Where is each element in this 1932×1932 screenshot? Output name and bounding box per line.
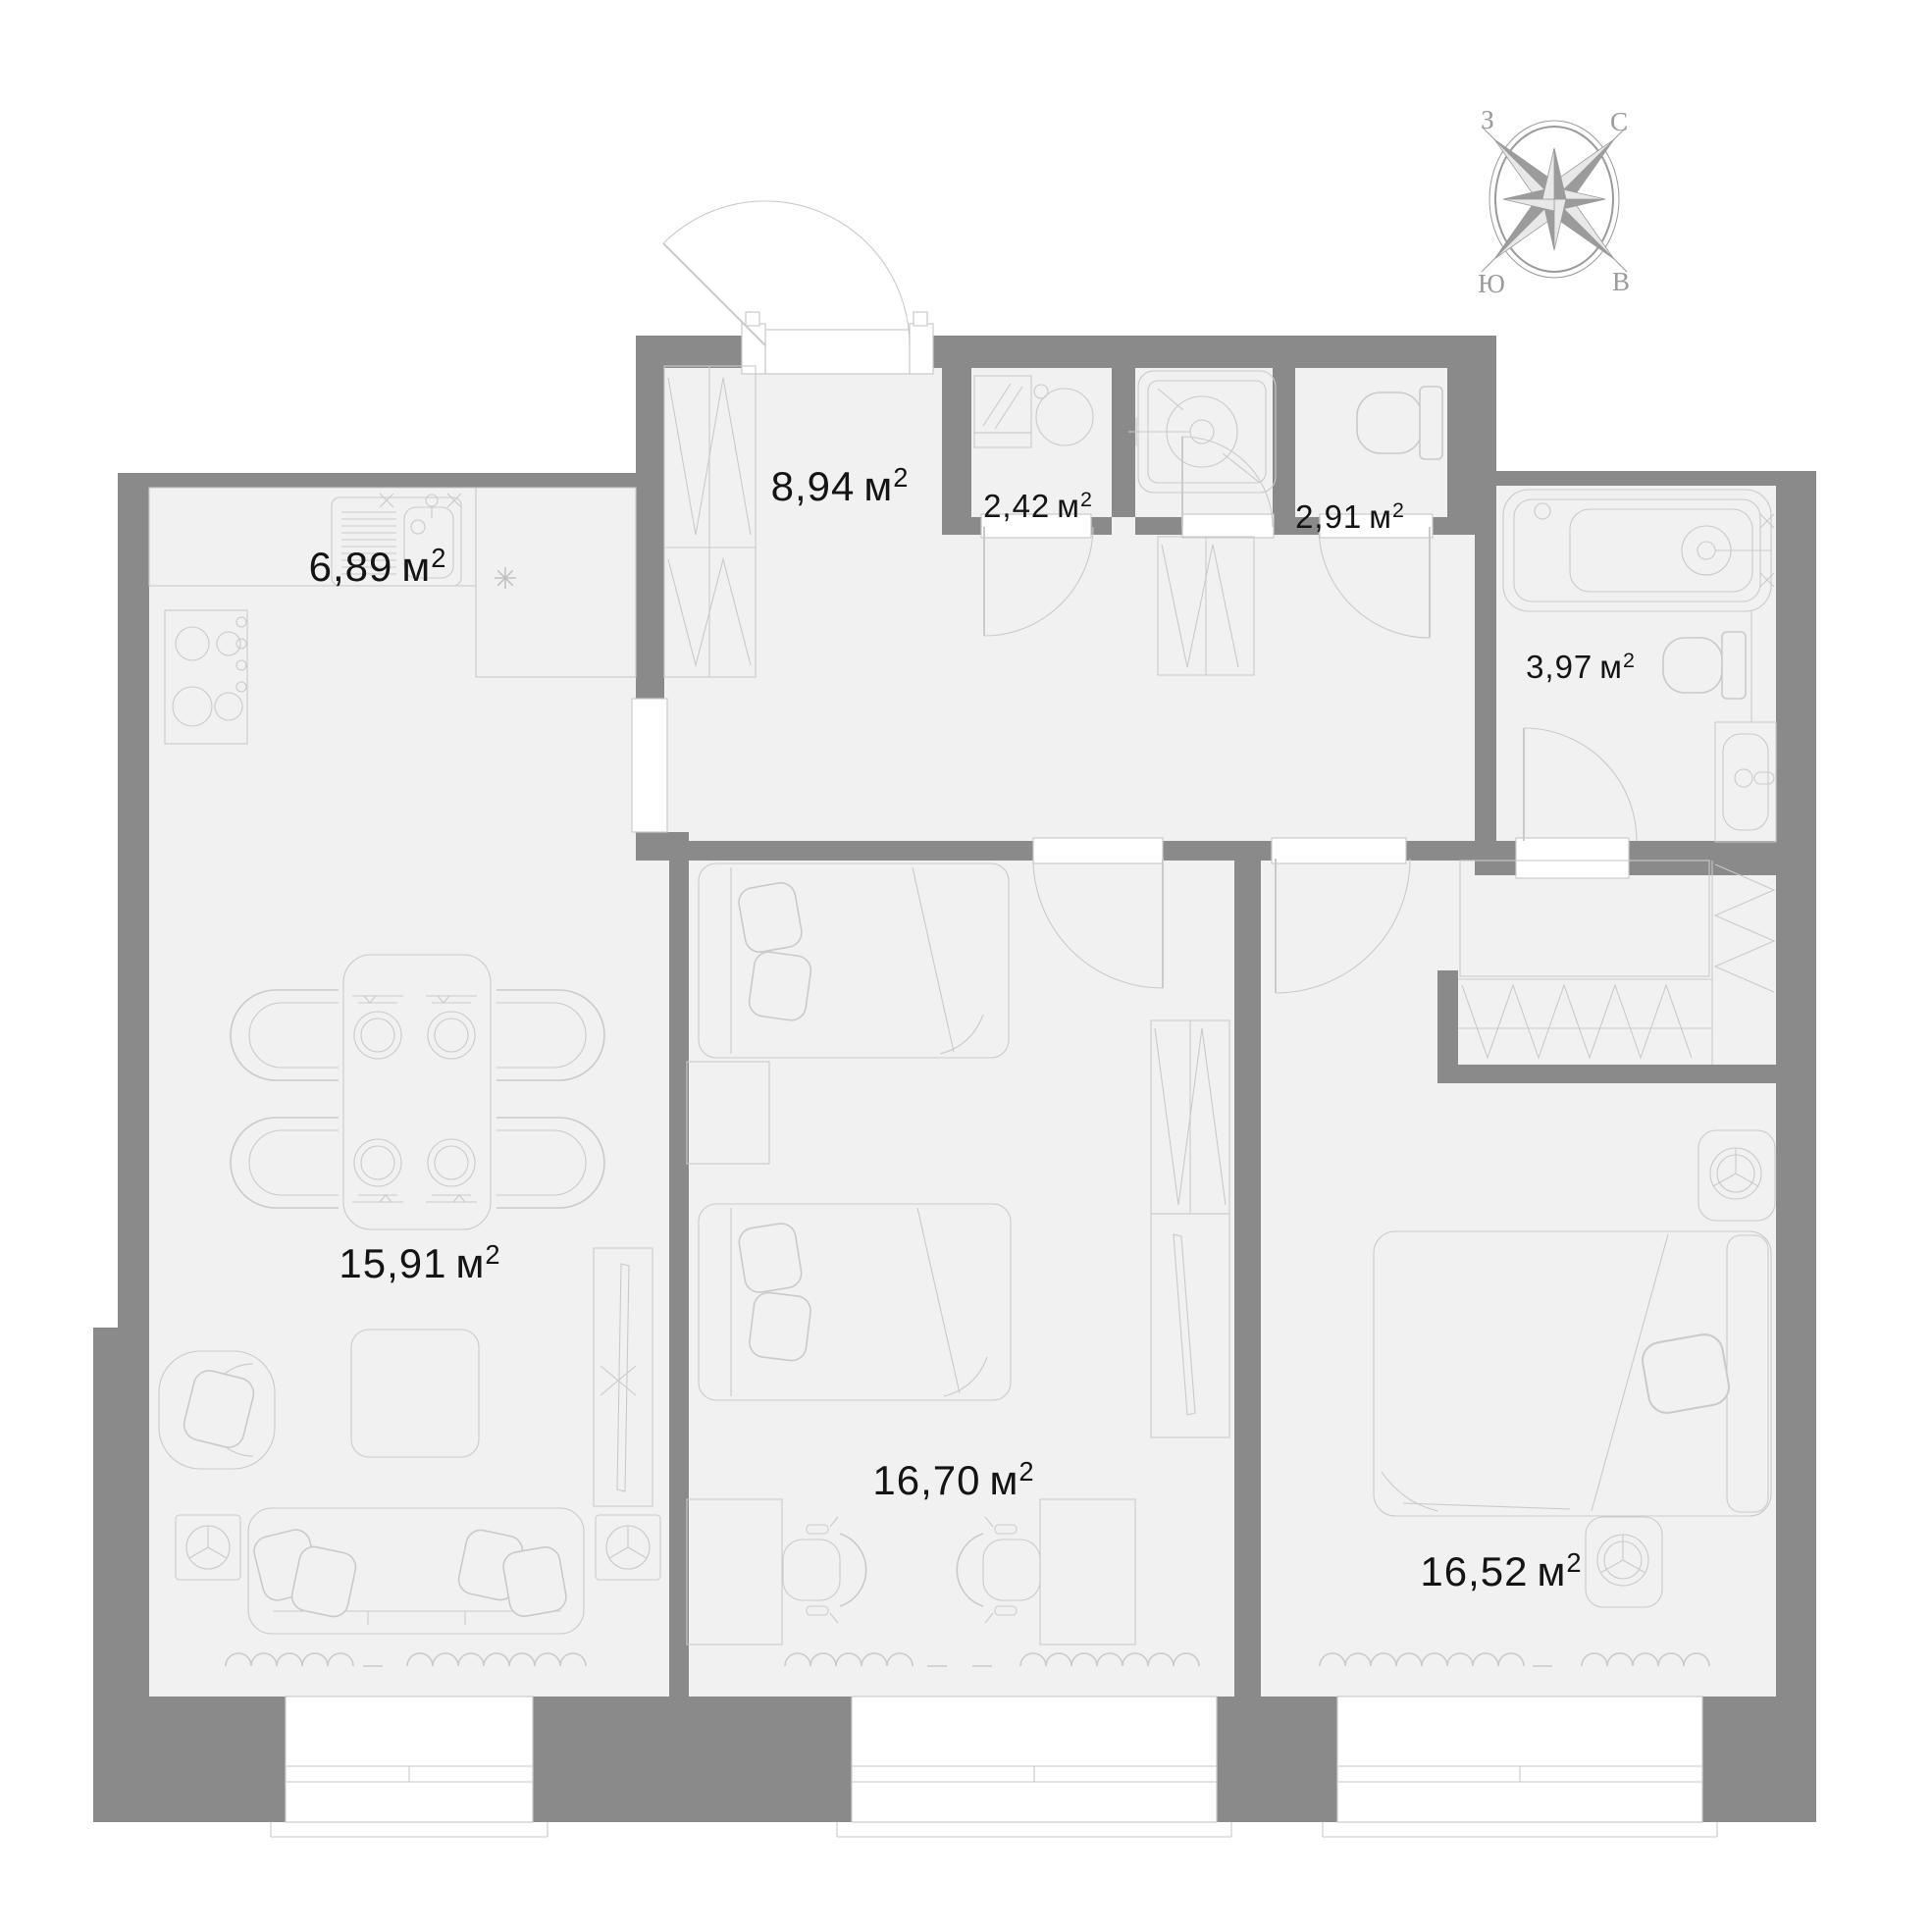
label-bedroom-2: 16,52м2 bbox=[1420, 1547, 1582, 1594]
compass-south-label: Ю bbox=[1478, 269, 1505, 298]
compass-star bbox=[1494, 139, 1614, 259]
window-living bbox=[286, 1697, 533, 1822]
compass-north-label: С bbox=[1610, 107, 1628, 136]
label-shower-room: 2,91м2 bbox=[1295, 498, 1405, 535]
label-bathroom: 3,97м2 bbox=[1526, 649, 1636, 685]
wc-toilet bbox=[1357, 387, 1442, 459]
compass-rose: С В Ю З bbox=[1478, 105, 1630, 298]
compass-east-label: В bbox=[1612, 267, 1630, 296]
fridge-icon: ✳ bbox=[493, 562, 517, 597]
floor-plan: ✳ bbox=[0, 0, 1932, 1932]
entrance-door bbox=[663, 201, 910, 345]
living-passage-opening bbox=[632, 699, 667, 832]
bathroom-door-opening bbox=[1516, 838, 1629, 878]
label-kitchen: 6,89м2 bbox=[309, 543, 447, 590]
shower-door-opening bbox=[1182, 514, 1274, 538]
floor-plan-page: ✳ bbox=[0, 0, 1932, 1932]
bedroom-2-door-opening bbox=[1272, 838, 1406, 863]
label-bedroom-1: 16,70м2 bbox=[872, 1456, 1034, 1503]
label-living-room: 15,91м2 bbox=[339, 1239, 500, 1286]
entrance-opening bbox=[765, 330, 910, 374]
bathroom-toilet bbox=[1663, 632, 1746, 699]
window-bedroom-1 bbox=[852, 1697, 1217, 1822]
compass-west-label: З bbox=[1481, 105, 1494, 134]
label-hallway: 8,94м2 bbox=[771, 462, 910, 509]
window-bedroom-2 bbox=[1337, 1697, 1702, 1822]
label-laundry: 2,42м2 bbox=[983, 488, 1093, 524]
bedroom-1-door-opening bbox=[1033, 838, 1163, 863]
